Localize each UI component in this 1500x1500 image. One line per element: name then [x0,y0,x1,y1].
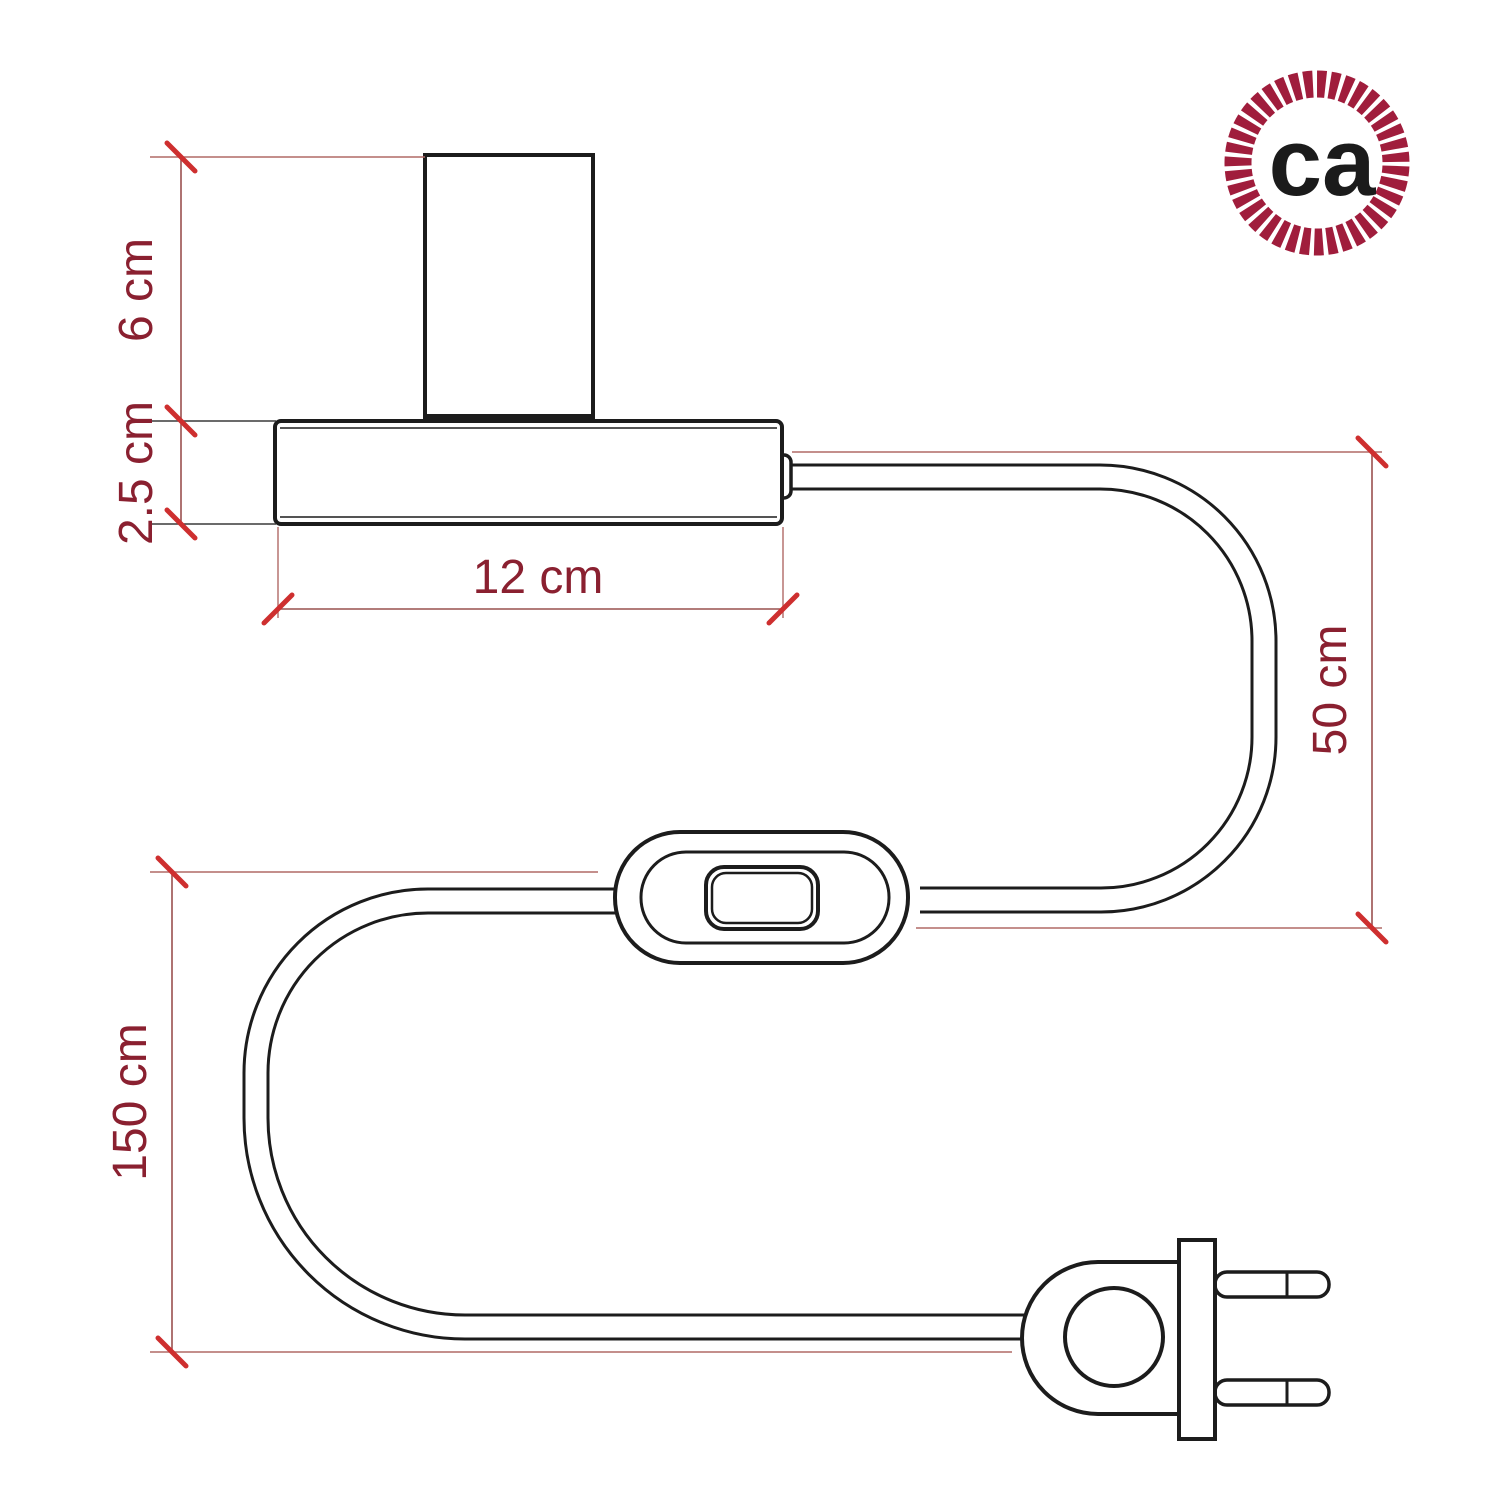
dimension-label-base-width: 12 cm [473,551,604,604]
switch-rocker-button [706,867,818,929]
plug-prong-bottom [1215,1380,1329,1405]
logo-monogram: ca [1269,109,1376,216]
socket-cylinder [425,155,593,421]
plug-prong-top [1215,1272,1329,1297]
plug-grip-hole [1065,1288,1163,1386]
dimension-label-base-height: 2.5 cm [110,401,163,545]
dimension-label-cable-switch-to-plug: 150 cm [104,1023,157,1180]
product-dimension-diagram: 6 cm 2.5 cm 12 cm 50 cm 150 cm ca [0,0,1500,1500]
lamp-base [275,421,782,524]
dimension-label-cable-base-to-switch: 50 cm [1304,625,1357,756]
inline-switch [615,832,908,963]
plug-face-plate [1179,1240,1215,1439]
technical-drawing: 6 cm 2.5 cm 12 cm 50 cm 150 cm ca [0,0,1500,1500]
dimension-label-socket-height: 6 cm [110,238,163,342]
